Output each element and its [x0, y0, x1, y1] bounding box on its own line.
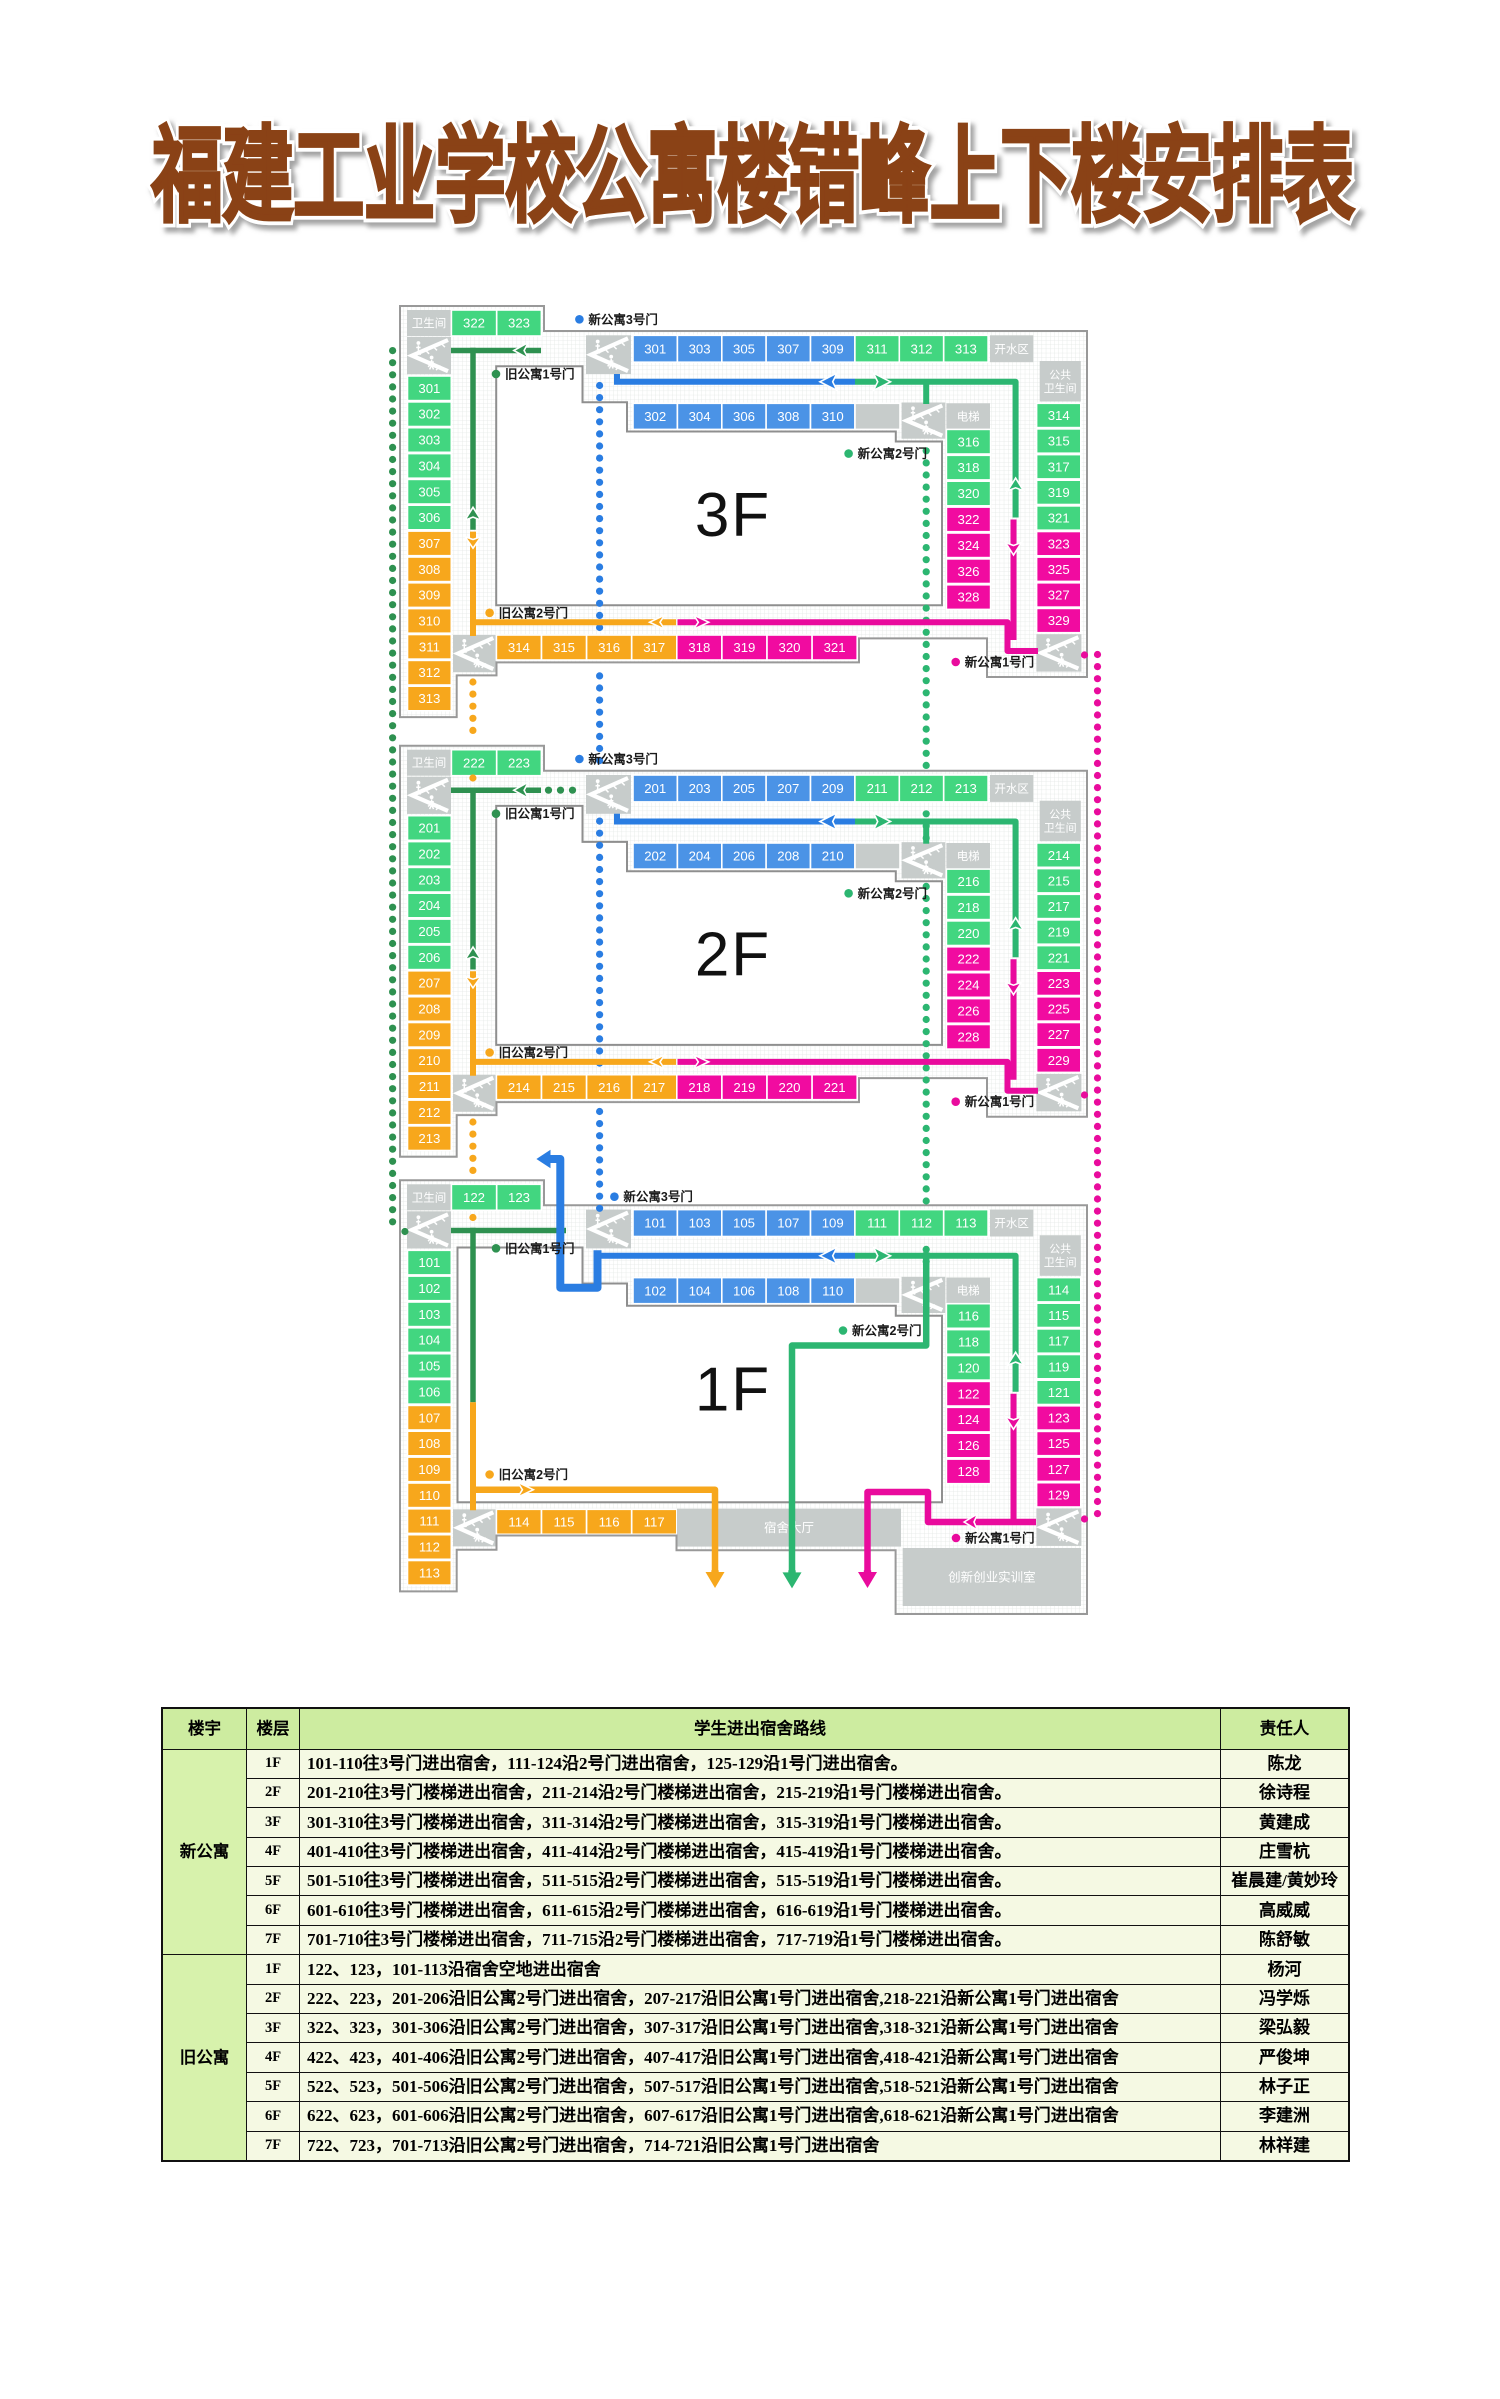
- svg-text:306: 306: [733, 409, 755, 424]
- svg-text:107: 107: [418, 1410, 440, 1425]
- svg-text:313: 313: [418, 691, 440, 706]
- svg-text:301: 301: [418, 381, 440, 396]
- svg-text:公共: 公共: [1049, 368, 1071, 381]
- svg-text:221: 221: [824, 1080, 846, 1095]
- svg-text:216: 216: [598, 1080, 620, 1095]
- svg-text:112: 112: [419, 1540, 440, 1555]
- svg-text:125: 125: [1048, 1436, 1070, 1451]
- svg-text:新公寓1号门: 新公寓1号门: [965, 1094, 1034, 1109]
- svg-text:205: 205: [733, 781, 755, 796]
- svg-text:新公寓2号门: 新公寓2号门: [858, 446, 927, 461]
- svg-text:121: 121: [1048, 1385, 1070, 1400]
- svg-text:219: 219: [733, 1080, 755, 1095]
- svg-text:旧公寓1号门: 旧公寓1号门: [505, 1241, 574, 1256]
- svg-text:104: 104: [689, 1283, 711, 1298]
- svg-text:217: 217: [643, 1080, 665, 1095]
- svg-text:304: 304: [689, 409, 711, 424]
- svg-text:3F: 3F: [695, 481, 771, 550]
- svg-text:117: 117: [644, 1514, 665, 1529]
- svg-text:新公寓3号门: 新公寓3号门: [588, 312, 657, 327]
- svg-text:114: 114: [508, 1514, 529, 1529]
- svg-text:公共: 公共: [1049, 1243, 1071, 1256]
- svg-text:309: 309: [418, 588, 440, 603]
- svg-text:卫生间: 卫生间: [1044, 1255, 1077, 1269]
- svg-text:221: 221: [1048, 950, 1070, 965]
- svg-text:302: 302: [418, 407, 440, 422]
- svg-text:213: 213: [955, 781, 977, 796]
- svg-text:303: 303: [418, 433, 440, 448]
- svg-text:电梯: 电梯: [957, 410, 980, 423]
- svg-text:卫生间: 卫生间: [412, 316, 447, 330]
- svg-text:226: 226: [957, 1004, 979, 1019]
- svg-text:304: 304: [418, 458, 440, 473]
- svg-text:308: 308: [418, 562, 440, 577]
- svg-text:207: 207: [418, 976, 440, 991]
- svg-text:305: 305: [418, 484, 440, 499]
- svg-text:106: 106: [418, 1384, 440, 1399]
- svg-text:319: 319: [1048, 485, 1070, 500]
- svg-text:321: 321: [1048, 511, 1070, 526]
- svg-text:118: 118: [958, 1335, 979, 1350]
- svg-text:205: 205: [418, 924, 440, 939]
- svg-text:305: 305: [733, 341, 755, 356]
- svg-text:215: 215: [1048, 873, 1070, 888]
- svg-text:307: 307: [418, 536, 440, 551]
- svg-text:旧公寓2号门: 旧公寓2号门: [499, 1467, 568, 1482]
- svg-text:229: 229: [1048, 1053, 1070, 1068]
- svg-text:120: 120: [957, 1360, 979, 1375]
- svg-text:201: 201: [418, 821, 440, 836]
- svg-text:206: 206: [418, 950, 440, 965]
- svg-text:105: 105: [418, 1359, 440, 1374]
- svg-text:201: 201: [644, 781, 666, 796]
- svg-text:103: 103: [418, 1307, 440, 1322]
- svg-text:309: 309: [822, 341, 844, 356]
- svg-text:210: 210: [418, 1053, 440, 1068]
- svg-text:129: 129: [1048, 1488, 1070, 1503]
- svg-text:108: 108: [418, 1436, 440, 1451]
- svg-text:302: 302: [644, 409, 666, 424]
- svg-text:新公寓3号门: 新公寓3号门: [623, 1189, 692, 1204]
- svg-text:312: 312: [418, 665, 440, 680]
- svg-text:新公寓3号门: 新公寓3号门: [588, 752, 657, 767]
- svg-text:122: 122: [957, 1386, 979, 1401]
- svg-text:228: 228: [957, 1029, 979, 1044]
- svg-text:公共: 公共: [1049, 808, 1071, 821]
- svg-text:202: 202: [644, 849, 666, 864]
- svg-text:222: 222: [957, 952, 979, 967]
- svg-text:321: 321: [824, 640, 846, 655]
- svg-text:卫生间: 卫生间: [412, 756, 447, 770]
- svg-text:109: 109: [822, 1216, 844, 1231]
- svg-text:311: 311: [419, 639, 440, 654]
- svg-text:203: 203: [689, 781, 711, 796]
- svg-text:旧公寓2号门: 旧公寓2号门: [499, 1045, 568, 1060]
- svg-text:卫生间: 卫生间: [412, 1190, 447, 1204]
- svg-text:220: 220: [957, 926, 979, 941]
- svg-text:310: 310: [418, 614, 440, 629]
- svg-text:319: 319: [733, 640, 755, 655]
- svg-text:新公寓1号门: 新公寓1号门: [965, 1531, 1034, 1546]
- svg-text:卫生间: 卫生间: [1044, 821, 1077, 835]
- svg-text:福建工业学校公寓楼错峰上下楼安排表: 福建工业学校公寓楼错峰上下楼安排表: [151, 117, 1354, 234]
- svg-text:电梯: 电梯: [957, 850, 980, 863]
- svg-text:225: 225: [1048, 1002, 1070, 1017]
- svg-text:308: 308: [777, 409, 799, 424]
- svg-text:卫生间: 卫生间: [1044, 381, 1077, 395]
- svg-text:313: 313: [955, 341, 977, 356]
- svg-text:115: 115: [553, 1514, 574, 1529]
- svg-text:2F: 2F: [695, 921, 771, 990]
- svg-text:119: 119: [1048, 1359, 1069, 1374]
- svg-text:329: 329: [1048, 613, 1070, 628]
- svg-text:216: 216: [957, 874, 979, 889]
- svg-text:108: 108: [777, 1283, 799, 1298]
- svg-text:106: 106: [733, 1283, 755, 1298]
- svg-text:207: 207: [777, 781, 799, 796]
- svg-text:旧公寓1号门: 旧公寓1号门: [505, 806, 574, 821]
- svg-text:123: 123: [1048, 1411, 1070, 1426]
- svg-text:113: 113: [419, 1565, 440, 1580]
- svg-text:223: 223: [508, 755, 530, 770]
- svg-text:204: 204: [689, 849, 711, 864]
- svg-text:315: 315: [553, 640, 575, 655]
- svg-text:109: 109: [418, 1462, 440, 1477]
- svg-text:旧公寓1号门: 旧公寓1号门: [505, 367, 574, 382]
- svg-text:218: 218: [957, 900, 979, 915]
- svg-text:新公寓2号门: 新公寓2号门: [858, 886, 927, 901]
- svg-text:104: 104: [418, 1333, 440, 1348]
- svg-text:1F: 1F: [695, 1355, 771, 1424]
- svg-text:209: 209: [418, 1027, 440, 1042]
- svg-text:220: 220: [778, 1080, 800, 1095]
- svg-text:114: 114: [1048, 1282, 1069, 1297]
- svg-text:326: 326: [957, 564, 979, 579]
- svg-text:102: 102: [644, 1283, 666, 1298]
- svg-text:320: 320: [957, 486, 979, 501]
- svg-text:创新创业实训室: 创新创业实训室: [948, 1569, 1036, 1584]
- svg-text:旧公寓2号门: 旧公寓2号门: [499, 605, 568, 620]
- svg-text:322: 322: [463, 316, 485, 331]
- svg-text:301: 301: [644, 341, 666, 356]
- svg-text:316: 316: [598, 640, 620, 655]
- svg-text:111: 111: [867, 1216, 887, 1231]
- svg-text:307: 307: [777, 341, 799, 356]
- svg-text:322: 322: [957, 512, 979, 527]
- svg-text:117: 117: [1048, 1334, 1069, 1349]
- svg-text:105: 105: [733, 1216, 755, 1231]
- svg-text:115: 115: [1048, 1308, 1069, 1323]
- svg-text:211: 211: [419, 1079, 440, 1094]
- svg-text:317: 317: [643, 640, 665, 655]
- svg-text:214: 214: [508, 1080, 530, 1095]
- svg-text:311: 311: [867, 341, 888, 356]
- svg-text:224: 224: [957, 978, 979, 993]
- svg-text:312: 312: [910, 341, 932, 356]
- svg-text:208: 208: [418, 1002, 440, 1017]
- svg-text:127: 127: [1048, 1462, 1070, 1477]
- svg-text:212: 212: [910, 781, 932, 796]
- svg-text:317: 317: [1048, 459, 1070, 474]
- svg-text:206: 206: [733, 849, 755, 864]
- svg-text:327: 327: [1048, 588, 1070, 603]
- svg-text:204: 204: [418, 898, 440, 913]
- svg-text:303: 303: [689, 341, 711, 356]
- svg-text:203: 203: [418, 872, 440, 887]
- svg-text:212: 212: [418, 1105, 440, 1120]
- svg-text:210: 210: [822, 849, 844, 864]
- svg-text:223: 223: [1048, 976, 1070, 991]
- svg-text:开水区: 开水区: [994, 1217, 1029, 1230]
- svg-text:107: 107: [777, 1216, 799, 1231]
- svg-text:320: 320: [778, 640, 800, 655]
- svg-text:219: 219: [1048, 925, 1070, 940]
- svg-text:112: 112: [911, 1216, 932, 1231]
- svg-text:318: 318: [688, 640, 710, 655]
- svg-text:218: 218: [688, 1080, 710, 1095]
- svg-text:306: 306: [418, 510, 440, 525]
- svg-text:227: 227: [1048, 1027, 1070, 1042]
- svg-text:122: 122: [463, 1190, 485, 1205]
- svg-text:328: 328: [957, 590, 979, 605]
- svg-text:222: 222: [463, 755, 485, 770]
- svg-text:314: 314: [508, 640, 530, 655]
- svg-text:213: 213: [418, 1131, 440, 1146]
- svg-text:101: 101: [418, 1255, 440, 1270]
- svg-text:开水区: 开水区: [994, 343, 1029, 356]
- svg-text:102: 102: [418, 1281, 440, 1296]
- svg-text:113: 113: [955, 1216, 976, 1231]
- svg-text:325: 325: [1048, 562, 1070, 577]
- svg-text:202: 202: [418, 846, 440, 861]
- svg-text:111: 111: [419, 1514, 439, 1529]
- svg-text:323: 323: [1048, 536, 1070, 551]
- svg-text:101: 101: [644, 1216, 666, 1231]
- svg-text:315: 315: [1048, 434, 1070, 449]
- svg-text:318: 318: [957, 460, 979, 475]
- svg-text:电梯: 电梯: [957, 1285, 980, 1298]
- svg-text:211: 211: [867, 781, 888, 796]
- svg-text:116: 116: [599, 1514, 620, 1529]
- svg-text:209: 209: [822, 781, 844, 796]
- svg-text:214: 214: [1048, 848, 1070, 863]
- svg-text:310: 310: [822, 409, 844, 424]
- svg-text:217: 217: [1048, 899, 1070, 914]
- svg-text:124: 124: [957, 1412, 979, 1427]
- svg-text:116: 116: [958, 1309, 979, 1324]
- svg-text:新公寓2号门: 新公寓2号门: [852, 1323, 921, 1338]
- svg-text:103: 103: [689, 1216, 711, 1231]
- svg-text:110: 110: [822, 1283, 843, 1298]
- svg-text:208: 208: [777, 849, 799, 864]
- svg-text:123: 123: [508, 1190, 530, 1205]
- svg-text:开水区: 开水区: [994, 783, 1029, 796]
- svg-text:215: 215: [553, 1080, 575, 1095]
- svg-text:128: 128: [957, 1464, 979, 1479]
- svg-text:新公寓1号门: 新公寓1号门: [965, 655, 1034, 670]
- svg-text:324: 324: [957, 538, 979, 553]
- svg-text:323: 323: [508, 316, 530, 331]
- svg-text:110: 110: [419, 1488, 440, 1503]
- svg-text:316: 316: [957, 434, 979, 449]
- svg-text:126: 126: [957, 1438, 979, 1453]
- svg-text:314: 314: [1048, 408, 1070, 423]
